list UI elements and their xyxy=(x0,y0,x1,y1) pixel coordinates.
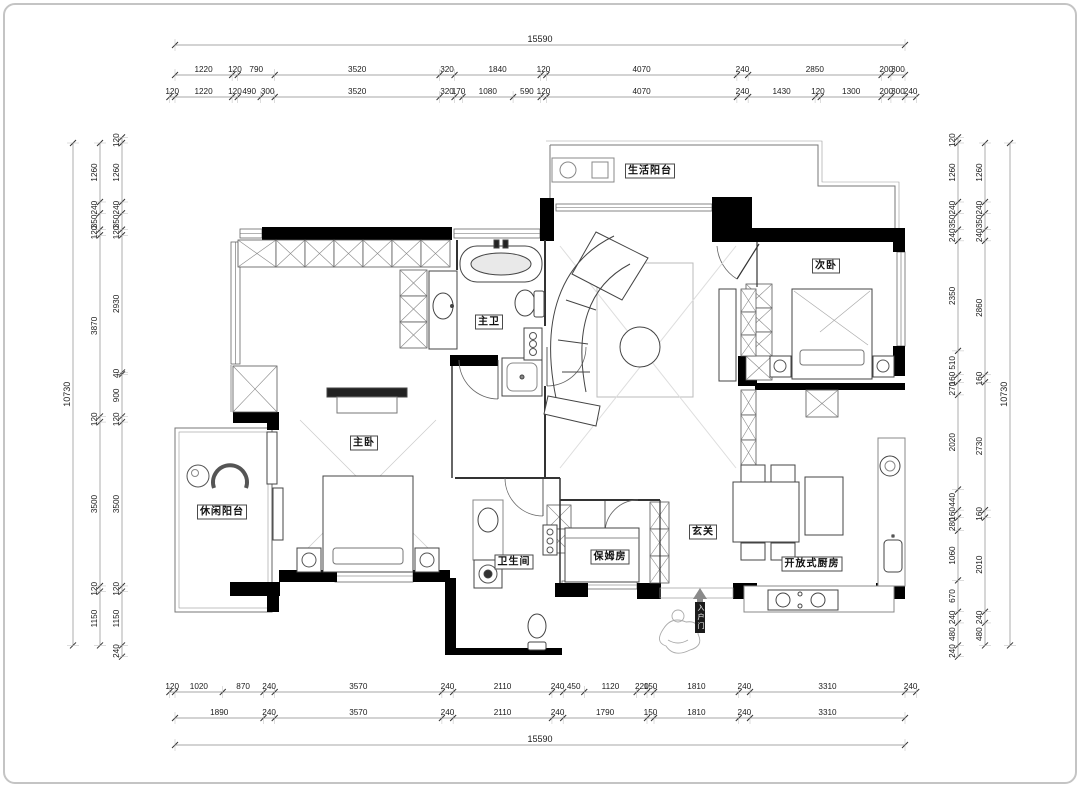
dim-label: 1120 xyxy=(602,682,620,691)
dim-label: 2110 xyxy=(494,682,512,691)
wall-segment xyxy=(743,228,895,242)
coffee-table xyxy=(620,327,660,367)
dim-label: 900 xyxy=(112,388,121,402)
wall-segment xyxy=(540,198,554,241)
dim-label: 240 xyxy=(441,708,455,717)
dim-label: 120 xyxy=(90,412,99,426)
dim-chain-left_outer: 10730 xyxy=(62,140,79,648)
dim-label: 1060 xyxy=(948,546,957,565)
dim-chain-right_inner: 1201260240350240235051016027020204401602… xyxy=(948,133,964,660)
dim-label: 320 xyxy=(440,65,454,74)
dim-label: 240 xyxy=(112,200,121,214)
room-label-foyer: 玄关 xyxy=(689,525,717,540)
dim-label: 240 xyxy=(738,682,752,691)
dim-label: 10730 xyxy=(62,382,72,407)
wall-segment xyxy=(893,346,905,376)
dim-label: 170 xyxy=(452,87,466,96)
dim-label: 120 xyxy=(112,225,121,239)
dim-label: 15590 xyxy=(527,734,552,744)
dim-label: 10730 xyxy=(999,382,1009,407)
dim-chain-bottom_row1: 1201020870240357024021102404501120220150… xyxy=(165,682,919,698)
dim-label: 2730 xyxy=(975,437,984,456)
dim-label: 240 xyxy=(948,228,957,242)
wall-segment xyxy=(445,578,456,655)
dim-label: 240 xyxy=(948,610,957,624)
bath-cabinet xyxy=(524,328,542,360)
dim-label: 280 xyxy=(948,517,957,531)
toilet-master xyxy=(515,290,544,317)
dim-label: 270 xyxy=(948,381,957,395)
dim-label: 300 xyxy=(891,65,905,74)
kitchen-island xyxy=(805,477,843,535)
entry-figure-sketch xyxy=(659,610,699,653)
room-label-bedroom-2: 次卧 xyxy=(812,259,840,274)
dim-label: 1080 xyxy=(479,87,498,96)
dim-label: 1150 xyxy=(90,609,99,627)
room-label-master-bedroom: 主卧 xyxy=(350,436,378,451)
room-label-bathroom: 卫生间 xyxy=(495,555,534,570)
dim-label: 120 xyxy=(537,65,551,74)
dim-label: 4070 xyxy=(633,87,652,96)
floorplan-canvas: 1559012201207903520320184012040702402850… xyxy=(0,0,1080,787)
dim-label: 240 xyxy=(551,682,565,691)
dim-label: 2110 xyxy=(494,708,512,717)
dim-label: 3520 xyxy=(348,65,367,74)
dim-label: 2850 xyxy=(806,65,825,74)
dim-label: 1220 xyxy=(194,87,213,96)
wall-segment xyxy=(450,355,498,366)
dim-label: 3870 xyxy=(90,316,99,335)
dim-label: 240 xyxy=(904,87,918,96)
dim-label: 480 xyxy=(948,627,957,641)
wall-segment xyxy=(637,583,661,599)
dim-label: 670 xyxy=(948,589,957,603)
dim-label: 1840 xyxy=(489,65,508,74)
dim-label: 2350 xyxy=(948,286,957,305)
dim-label: 3500 xyxy=(112,494,121,513)
dim-label: 240 xyxy=(975,200,984,214)
dim-chain-left_mid: 1260240350120387012035001201150 xyxy=(90,140,106,648)
dim-label: 240 xyxy=(975,610,984,624)
dim-label: 1300 xyxy=(842,87,861,96)
dim-chain-right_outer: 10730 xyxy=(999,140,1016,648)
dim-label: 240 xyxy=(112,644,121,658)
dim-label: 240 xyxy=(904,682,918,691)
dim-label: 1790 xyxy=(596,708,615,717)
dim-label: 240 xyxy=(736,65,750,74)
wall-segment xyxy=(267,583,279,612)
dim-label: 240 xyxy=(948,644,957,658)
dim-label: 240 xyxy=(441,682,455,691)
dim-chain-bottom_outer: 15590 xyxy=(172,734,908,751)
dim-label: 240 xyxy=(262,708,276,717)
dim-chain-right_mid: 1260240350240286016027301602010240480 xyxy=(975,140,991,648)
dim-chain-top_row1: 1220120790352032018401204070240285020030… xyxy=(172,65,908,81)
dim-label: 3520 xyxy=(348,87,367,96)
dim-label: 1810 xyxy=(687,708,706,717)
dim-label: 1260 xyxy=(948,163,957,182)
floor-plan-drawing: 1559012201207903520320184012040702402850… xyxy=(0,0,1080,787)
room-label-master-bath: 主卫 xyxy=(475,315,503,330)
dim-label: 1020 xyxy=(190,682,209,691)
dim-label: 160 xyxy=(975,371,984,385)
dim-label: 1260 xyxy=(975,163,984,182)
dim-label: 350 xyxy=(975,214,984,228)
dim-label: 40 xyxy=(112,368,121,378)
dim-label: 120 xyxy=(537,87,551,96)
dim-label: 120 xyxy=(90,225,99,239)
dim-label: 350 xyxy=(948,214,957,228)
entry-door-label: 入户门 xyxy=(695,602,705,633)
dim-label: 3310 xyxy=(818,682,837,691)
dim-label: 15590 xyxy=(527,34,552,44)
dim-label: 120 xyxy=(165,87,179,96)
dim-label: 3310 xyxy=(818,708,837,717)
dim-label: 1810 xyxy=(687,682,706,691)
dim-label: 150 xyxy=(644,708,658,717)
room-label-leisure-balcony: 休闲阳台 xyxy=(197,505,247,520)
dim-label: 2020 xyxy=(948,433,957,452)
balcony-chair xyxy=(187,465,247,488)
dim-label: 120 xyxy=(112,133,121,147)
dim-label: 450 xyxy=(567,682,581,691)
dim-label: 590 xyxy=(520,87,534,96)
dim-label: 240 xyxy=(551,708,565,717)
laundry-counter xyxy=(552,158,614,182)
dim-label: 160 xyxy=(975,507,984,521)
dim-label: 1260 xyxy=(112,163,121,182)
dim-label: 120 xyxy=(948,133,957,147)
master-tv-bench xyxy=(327,388,407,413)
shower xyxy=(502,358,542,396)
dim-chain-bottom_row2: 189024035702402110240179015018102403310 xyxy=(172,708,908,724)
dim-label: 240 xyxy=(736,87,750,96)
dim-label: 1220 xyxy=(194,65,213,74)
sliding-door-panels xyxy=(267,432,283,540)
dim-label: 3570 xyxy=(349,682,368,691)
dim-label: 2860 xyxy=(975,298,984,317)
bathtub xyxy=(460,240,542,282)
dim-label: 240 xyxy=(975,228,984,242)
wall-segment xyxy=(262,227,452,240)
dim-label: 120 xyxy=(811,87,825,96)
dim-label: 150 xyxy=(644,682,658,691)
dim-label: 2010 xyxy=(975,555,984,574)
dim-label: 510 xyxy=(948,356,957,370)
dim-label: 120 xyxy=(228,65,242,74)
dim-label: 4070 xyxy=(633,65,652,74)
dim-label: 1430 xyxy=(773,87,792,96)
dim-label: 120 xyxy=(90,582,99,596)
wall-segment xyxy=(555,583,588,597)
dim-chain-top_outer: 15590 xyxy=(172,34,908,51)
dim-label: 120 xyxy=(112,412,121,426)
wall-segment xyxy=(755,383,905,390)
dim-label: 120 xyxy=(165,682,179,691)
room-label-laundry-balcony: 生活阳台 xyxy=(625,164,675,179)
dim-label: 240 xyxy=(738,708,752,717)
wall-segment xyxy=(267,412,279,430)
room-label-nanny-room: 保姆房 xyxy=(591,550,630,565)
vanity-master xyxy=(429,271,457,349)
dim-label: 240 xyxy=(262,682,276,691)
room-label-open-kitchen: 开放式厨房 xyxy=(782,557,843,572)
wall-segment xyxy=(893,228,905,252)
dim-label: 3500 xyxy=(90,494,99,513)
dim-label: 440 xyxy=(948,493,957,507)
dim-chain-left_inner: 1201260240350120293040900120350012011502… xyxy=(112,133,128,660)
dining-set xyxy=(733,465,843,560)
dim-label: 2930 xyxy=(112,294,121,313)
bathroom-fixtures xyxy=(473,500,546,650)
tv-cabinet xyxy=(719,289,736,381)
dim-label: 870 xyxy=(236,682,250,691)
dim-chain-top_row2: 1201220120490300352032017010805901204070… xyxy=(165,87,919,103)
dim-label: 120 xyxy=(112,582,121,596)
dim-label: 1890 xyxy=(210,708,229,717)
dim-label: 490 xyxy=(242,87,256,96)
dim-label: 1150 xyxy=(112,609,121,627)
dim-label: 790 xyxy=(249,65,263,74)
dim-label: 300 xyxy=(261,87,275,96)
dim-label: 240 xyxy=(90,200,99,214)
dim-label: 480 xyxy=(975,627,984,641)
dim-label: 240 xyxy=(948,200,957,214)
dim-label: 3570 xyxy=(349,708,368,717)
bed2 xyxy=(770,289,894,379)
dim-label: 1260 xyxy=(90,163,99,182)
dim-label: 120 xyxy=(228,87,242,96)
